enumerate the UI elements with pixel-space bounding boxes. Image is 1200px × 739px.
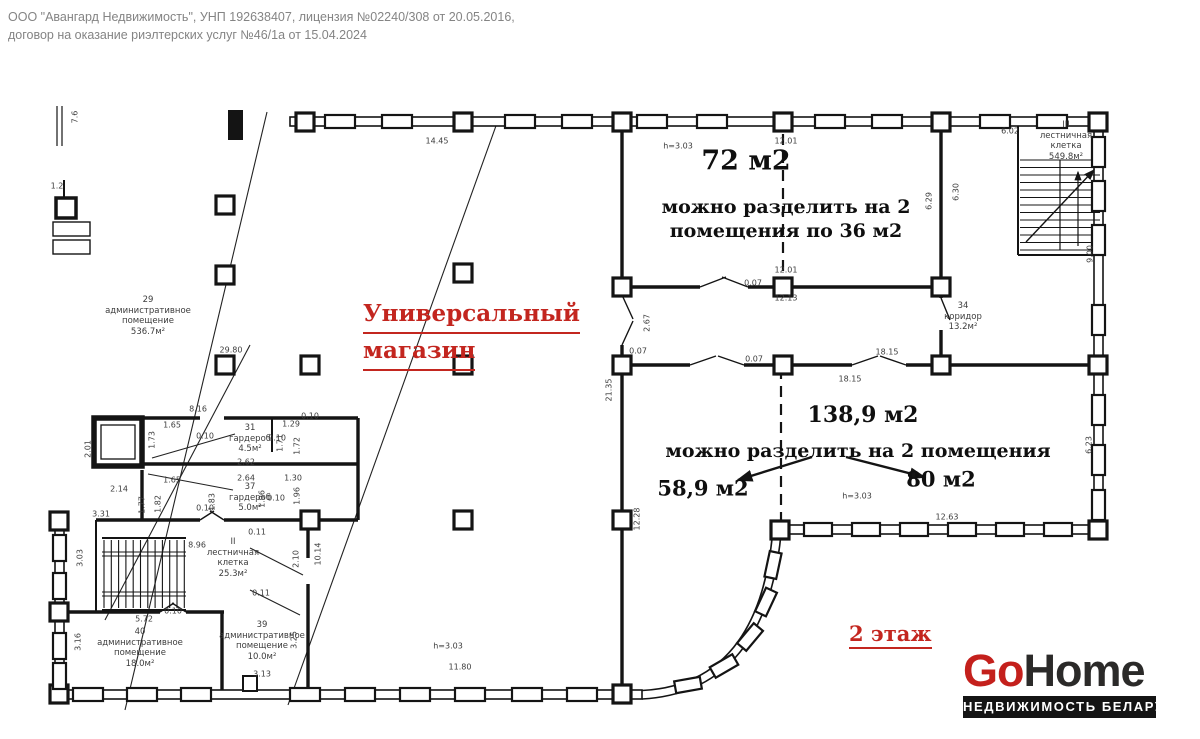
- split-arrows: [738, 457, 924, 480]
- logo-tagline: НЕДВИЖИМОСТЬ БЕЛАРУСИ: [963, 696, 1156, 718]
- structural-columns: [50, 113, 1107, 703]
- floor-plan-drawing: [0, 0, 1200, 739]
- plan-title-line2: магазин: [363, 334, 475, 371]
- stairs-right: [1020, 160, 1100, 250]
- plan-title-line1: Универсальный: [363, 297, 580, 334]
- stairs-left: [102, 538, 186, 610]
- logo-home-text: Home: [1024, 645, 1145, 696]
- plan-title: Универсальный магазин: [363, 297, 580, 371]
- gohome-logo: GoHome НЕДВИЖИМОСТЬ БЕЛАРУСИ: [963, 648, 1156, 718]
- gohome-wordmark: GoHome: [963, 648, 1156, 694]
- floor-plan-page: ООО "Авангард Недвижимость", УНП 1926384…: [0, 0, 1200, 739]
- leader-lines: [105, 112, 497, 710]
- floor-label: 2 этаж: [849, 621, 932, 649]
- logo-go-text: Go: [963, 645, 1024, 696]
- elevator-shaft: [94, 418, 142, 466]
